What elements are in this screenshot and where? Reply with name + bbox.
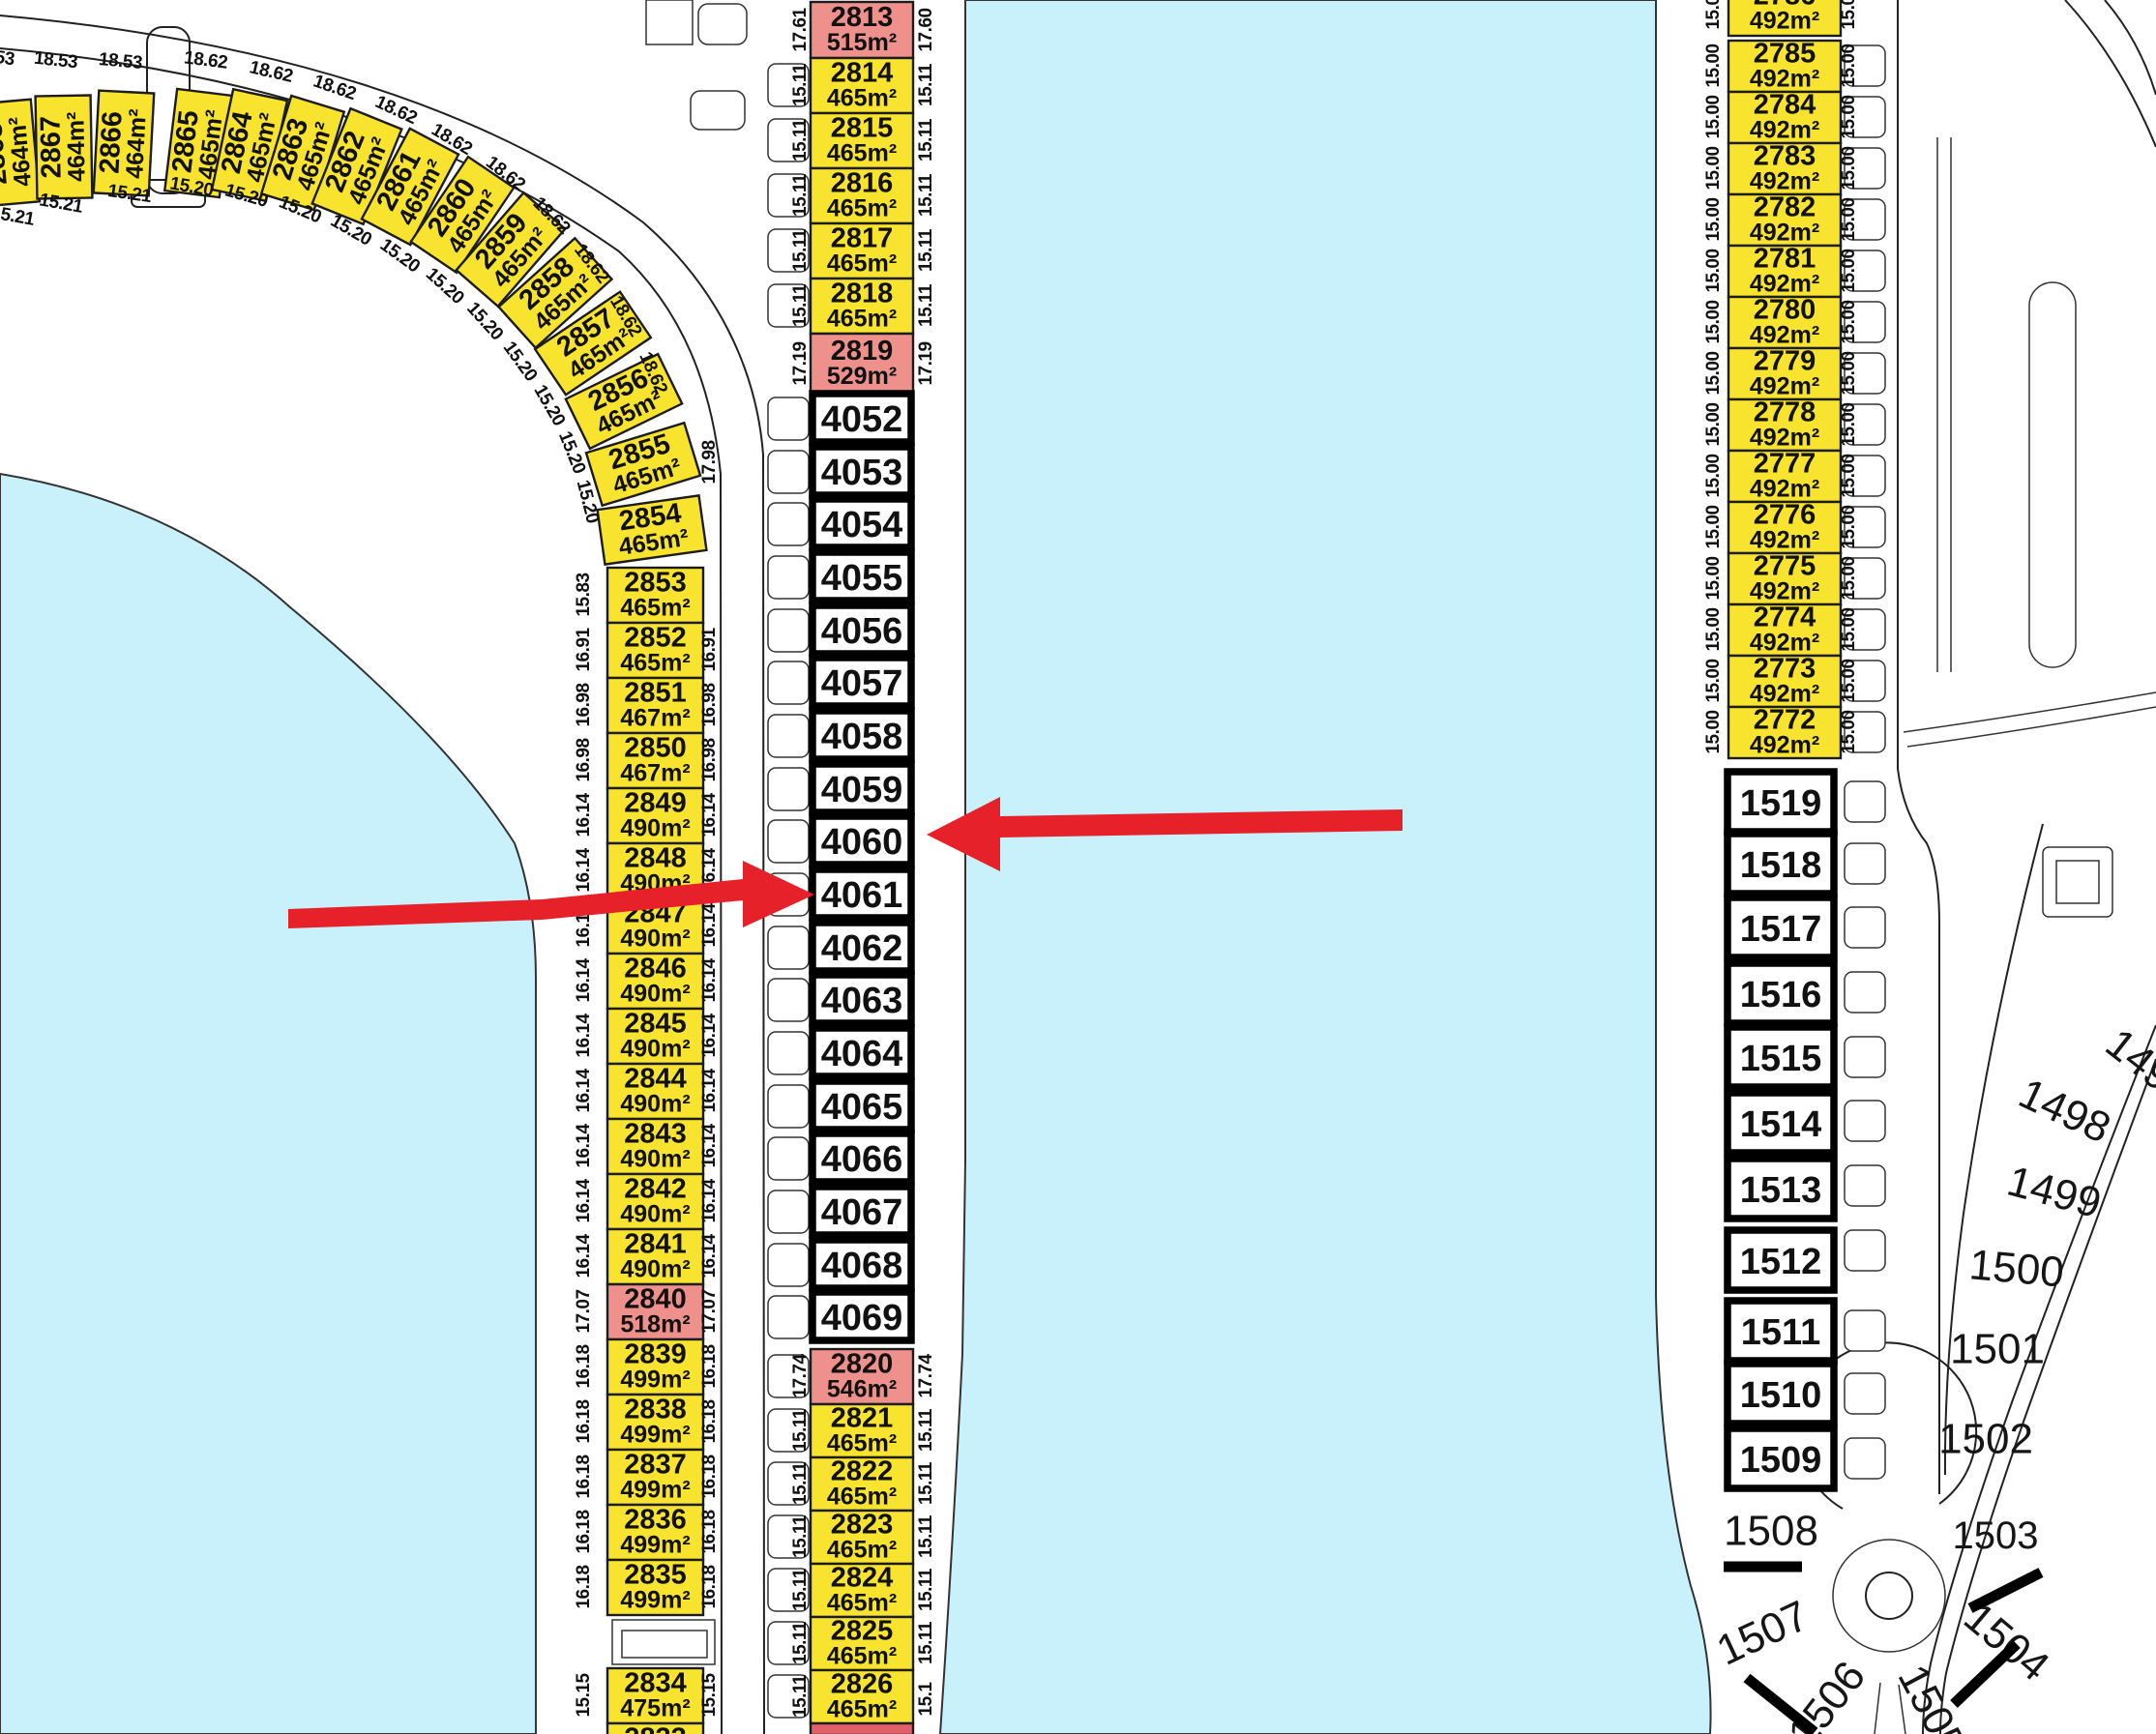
measurement-label: 16.98	[574, 683, 594, 726]
street-lot-1500: 1500	[1967, 1241, 2066, 1296]
lot-2824: 2824465m²	[811, 1563, 913, 1618]
measurement-label: 15.11	[916, 1408, 936, 1452]
boxed-lot-number: 1514	[1740, 1104, 1822, 1145]
lot-area: 490m²	[620, 1146, 690, 1173]
measurement-label: 15.00	[1703, 607, 1724, 651]
measurement-label: 15.11	[790, 1514, 811, 1558]
boxed-lot-number: 1518	[1740, 845, 1822, 886]
measurement-label: 15.00	[1703, 402, 1724, 446]
lot-area: 499m²	[620, 1532, 690, 1559]
boxed-lot-4064: 4064	[812, 1028, 911, 1076]
boxed-lot-number: 4059	[821, 770, 903, 810]
measurement-label: 16.91	[574, 628, 594, 672]
lot-2825: 2825465m²	[811, 1616, 913, 1671]
boxed-lot-number: 1516	[1740, 975, 1822, 1015]
boxed-lot-number: 1509	[1740, 1440, 1822, 1481]
measurement-label: 15.11	[916, 1621, 936, 1664]
measurement-label: 16.18	[699, 1510, 720, 1553]
measurement-label: 15.00	[1703, 659, 1724, 702]
boxed-lot-number: 1511	[1741, 1312, 1820, 1353]
lot-partial	[811, 1723, 913, 1734]
measurement-label: 15.00	[1839, 607, 1859, 651]
boxed-lot-4056: 4056	[812, 605, 911, 654]
measurement-label: 16.14	[574, 1014, 594, 1058]
boxed-lot-number: 4056	[821, 611, 903, 652]
measurement-label: 15.11	[790, 173, 811, 217]
measurement-label: 15.11	[790, 1621, 811, 1664]
lot-area: 467m²	[620, 760, 690, 787]
measurement-label: 15.00	[1703, 351, 1724, 395]
lot-area: 518m²	[620, 1311, 690, 1338]
measurement-label: 15.00	[1839, 402, 1859, 446]
lot-2823: 2823465m²	[811, 1510, 913, 1565]
measurement-label: 16.98	[699, 738, 720, 781]
measurement-label: 15.00	[1839, 300, 1859, 343]
measurement-label: 15.00	[1703, 197, 1724, 241]
driveway-structure	[768, 1085, 809, 1128]
measurement-label: 15.15	[699, 1673, 720, 1718]
lot-2781: 2781492m²	[1728, 244, 1841, 298]
lot-area: 465m²	[620, 650, 690, 677]
driveway-structure	[768, 715, 809, 757]
lot-2776: 2776492m²	[1728, 500, 1841, 554]
lot-area: 490m²	[620, 815, 690, 842]
driveway-structure	[1845, 907, 1885, 948]
boxed-lot-4068: 4068	[812, 1240, 911, 1288]
lot-2867: 2867464m²	[35, 96, 92, 199]
street-lot-1502: 1502	[1938, 1415, 2033, 1462]
boxed-lot-4055: 4055	[812, 552, 911, 601]
lot-2837: 2837499m²	[607, 1450, 703, 1506]
measurement-label: 15.11	[790, 228, 811, 272]
lot-area: 492m²	[1750, 220, 1819, 247]
lot-area: 546m²	[827, 1376, 897, 1403]
measurement-label: 16.14	[699, 1179, 720, 1223]
measurement-label: 15.00	[1703, 556, 1724, 600]
measurement-label: 18.53	[98, 49, 143, 73]
lot-2820: 2820546m²	[811, 1349, 913, 1405]
lot-area: 490m²	[620, 1036, 690, 1063]
lot-2834: 2834475m²	[607, 1668, 703, 1724]
measurement-label: 15.11	[790, 1568, 811, 1611]
driveway-structure	[1845, 1037, 1885, 1077]
lot-2839: 2839499m²	[607, 1339, 703, 1396]
measurement-label: 15.00	[1839, 505, 1859, 548]
measurement-label: 16.98	[574, 738, 594, 781]
measurement-label: 15.11	[790, 1674, 811, 1718]
measurement-label: 17.74	[916, 1354, 936, 1398]
lot-area: 492m²	[1750, 117, 1819, 144]
lot-area: 492m²	[1750, 373, 1819, 400]
lot-2843: 2843490m²	[607, 1119, 703, 1175]
driveway-structure	[768, 661, 809, 704]
lot-2826: 2826465m²	[811, 1669, 913, 1724]
measurement-label: 17.07	[699, 1289, 720, 1333]
driveway-structure	[768, 451, 809, 493]
street-lot-1501: 1501	[1950, 1325, 2045, 1372]
boxed-lot-number: 1512	[1740, 1242, 1822, 1282]
lot-area: 465m²	[827, 140, 897, 167]
boxed-lot-number: 4064	[821, 1034, 903, 1074]
lot-area: 492m²	[1750, 732, 1819, 759]
measurement-label: 15.00	[1839, 710, 1859, 753]
lot-2821: 2821465m²	[811, 1403, 913, 1458]
measurement-label: 15.11	[916, 1514, 936, 1558]
measurement-label: 16.18	[574, 1399, 594, 1443]
lot-area: 465m²	[620, 595, 690, 622]
measurement-label: 16.14	[574, 1234, 594, 1278]
boxed-lot-4057: 4057	[812, 658, 911, 706]
lot-area: 492m²	[1750, 66, 1819, 93]
lot-area: 492m²	[1750, 271, 1819, 298]
lot-area: 492m²	[1750, 527, 1819, 554]
lot-2773: 2773492m²	[1728, 654, 1841, 708]
lot-area: 465m²	[827, 1430, 897, 1457]
lot-area: 465m²	[827, 1537, 897, 1564]
measurement-label: 16.14	[574, 793, 594, 838]
driveway-structure	[768, 768, 809, 810]
driveway-structure	[768, 556, 809, 599]
boxed-lot-4065: 4065	[812, 1081, 911, 1130]
measurement-label: 15.00	[1703, 710, 1724, 753]
measurement-label: 15.00	[1839, 351, 1859, 395]
boxed-lot-4061: 4061	[812, 869, 911, 918]
driveway-structure	[1845, 1165, 1885, 1206]
lot-area: 492m²	[1750, 322, 1819, 349]
lot-2849: 2849490m²	[607, 788, 703, 844]
lot-area: 465m²	[827, 1590, 897, 1617]
measurement-label: 15.11	[790, 283, 811, 327]
lot-area: 490m²	[620, 981, 690, 1008]
lot-2841: 2841490m²	[607, 1229, 703, 1285]
boxed-lot-number: 4068	[821, 1246, 903, 1286]
lot-area: 499m²	[620, 1587, 690, 1614]
measurement-label: 15.00	[1703, 505, 1724, 548]
boxed-lot-4063: 4063	[812, 975, 911, 1023]
measurement-label: 16.18	[574, 1510, 594, 1553]
measurement-label: 16.14	[699, 1014, 720, 1058]
driveway-structure	[768, 1032, 809, 1074]
lot-2778: 2778492m²	[1728, 397, 1841, 452]
lot-2836: 2836499m²	[607, 1505, 703, 1561]
boxed-lot-4060: 4060	[812, 816, 911, 865]
boxed-lot-1519: 1519	[1728, 772, 1834, 832]
measurement-label: 16.14	[574, 1179, 594, 1223]
lot-area: 490m²	[620, 1256, 690, 1283]
measurement-label: 16.18	[699, 1344, 720, 1388]
lot-2784: 2784492m²	[1728, 90, 1841, 144]
lot-area: 492m²	[1750, 630, 1819, 657]
measurement-label: 16.14	[574, 848, 594, 893]
boxed-lot-number: 4067	[821, 1192, 903, 1233]
lot-2819: 2819529m²	[811, 334, 913, 394]
water-main-channel	[940, 0, 1711, 1734]
boxed-lot-number: 4058	[821, 717, 903, 757]
measurement-label: 15.11	[916, 228, 936, 272]
measurement-label: 15.00	[1839, 0, 1859, 30]
boxed-lot-1516: 1516	[1728, 963, 1834, 1023]
measurement-label: 16.14	[699, 958, 720, 1003]
lot-2844: 2844490m²	[607, 1064, 703, 1120]
lot-2774: 2774492m²	[1728, 602, 1841, 657]
lot-2846: 2846490m²	[607, 954, 703, 1010]
lot-area: 465m²	[827, 250, 897, 278]
lot-2851: 2851467m²	[607, 678, 703, 734]
boxed-lot-4054: 4054	[812, 499, 911, 547]
lot-area: 465m²	[827, 1696, 897, 1723]
measurement-label: 15.11	[916, 1461, 936, 1505]
measurement-label: 15.11	[916, 63, 936, 106]
boxed-lot-number: 1517	[1740, 909, 1822, 950]
measurement-label: 16.18	[699, 1565, 720, 1608]
measurement-label: 16.18	[699, 1399, 720, 1443]
lot-area: 492m²	[1750, 168, 1819, 195]
lot-2838: 2838499m²	[607, 1395, 703, 1451]
boxed-lot-4062: 4062	[812, 923, 911, 971]
measurement-label: 15.11	[916, 173, 936, 217]
boxed-lot-number: 4069	[821, 1298, 903, 1338]
measurement-label: 15.00	[1703, 300, 1724, 343]
boxed-lot-number: 4060	[821, 822, 903, 863]
measurement-label: 16.14	[699, 1234, 720, 1278]
measurement-label: 16.14	[574, 958, 594, 1003]
boxed-lot-1515: 1515	[1728, 1027, 1834, 1087]
lot-2817: 2817465m²	[811, 223, 913, 279]
lot-2780: 2780492m²	[1728, 295, 1841, 349]
boxed-lot-number: 4053	[821, 453, 903, 493]
measurement-label: 15.00	[1703, 146, 1724, 190]
measurement-label: 16.14	[699, 1124, 720, 1168]
measurement-label: 15.11	[790, 1461, 811, 1505]
measurement-label: 15.00	[1839, 44, 1859, 87]
lot-area: 492m²	[1750, 425, 1819, 452]
boxed-lot-4052: 4052	[812, 394, 911, 442]
lot-area: 499m²	[620, 1367, 690, 1394]
boxed-lot-number: 4054	[821, 505, 903, 545]
measurement-label: 15.1	[916, 1682, 936, 1717]
lot-2815: 2815465m²	[811, 113, 913, 169]
measurement-label: 15.11	[790, 63, 811, 106]
boxed-lot-4066: 4066	[812, 1133, 911, 1182]
measurement-label: 16.98	[699, 683, 720, 726]
driveway-structure	[768, 979, 809, 1021]
boxed-lot-number: 4065	[821, 1087, 903, 1128]
lot-area: 465m²	[827, 306, 897, 333]
driveway-structure	[1845, 972, 1885, 1013]
lot-area: 465m²	[827, 1643, 897, 1670]
measurement-label: 16.18	[699, 1455, 720, 1498]
lot-area: 465m²	[827, 195, 897, 222]
lot-2814: 2814465m²	[811, 58, 913, 114]
boxed-lot-number: 4062	[821, 928, 903, 969]
lot-area: 475m²	[620, 1695, 690, 1722]
lot-area: 492m²	[1750, 8, 1819, 35]
measurement-label: 15.00	[1703, 0, 1724, 30]
driveway-structure	[768, 609, 809, 652]
lot-area: 515m²	[827, 29, 897, 56]
boxed-lot-4053: 4053	[812, 447, 911, 495]
lot-area: 490m²	[620, 1091, 690, 1118]
lot-2833: 2833	[607, 1723, 703, 1734]
lot-area: 492m²	[1750, 681, 1819, 708]
lot-2772: 2772492m²	[1728, 705, 1841, 759]
measurement-label: 16.14	[574, 1069, 594, 1113]
measurement-label: 15.11	[790, 118, 811, 162]
lot-2853: 2853465m²	[607, 568, 703, 624]
lot-area: 529m²	[827, 363, 897, 390]
boxed-lot-number: 1513	[1740, 1170, 1822, 1211]
measurement-label: 16.18	[574, 1455, 594, 1498]
boxed-lot-1518: 1518	[1728, 834, 1834, 894]
lot-area: 465m²	[827, 1484, 897, 1511]
measurement-label: 53	[0, 47, 15, 71]
measurement-label: 15.00	[1703, 249, 1724, 292]
measurement-label: 16.14	[574, 1124, 594, 1168]
boxed-lot-number: 1515	[1740, 1039, 1822, 1079]
measurement-label: 15.00	[1703, 95, 1724, 138]
lot-2786: 2786492m²	[1728, 0, 1841, 36]
measurement-label: 16.18	[574, 1344, 594, 1388]
measurement-label: 17.19	[916, 341, 936, 385]
boxed-lot-number: 4057	[821, 663, 903, 704]
measurement-label: 15.00	[1703, 454, 1724, 497]
measurement-label: 17.61	[790, 8, 811, 52]
boxed-lot-4069: 4069	[812, 1292, 911, 1340]
boxed-lot-number: 4061	[821, 875, 903, 916]
measurement-label: 16.18	[574, 1565, 594, 1608]
boxed-lot-1511: 1511	[1728, 1301, 1834, 1361]
measurement-label: 15.00	[1839, 454, 1859, 497]
boxed-lot-1510: 1510	[1728, 1364, 1834, 1424]
measurement-label: 17.74	[790, 1354, 811, 1398]
measurement-label: 16.14	[699, 793, 720, 838]
lot-2783: 2783492m²	[1728, 141, 1841, 195]
lot-2813: 2813515m²	[811, 2, 913, 58]
measurement-label: 15.11	[916, 1568, 936, 1611]
lot-2816: 2816465m²	[811, 168, 913, 224]
boxed-lot-1514: 1514	[1728, 1093, 1834, 1153]
boxed-lot-4059: 4059	[812, 764, 911, 812]
lot-2818: 2818465m²	[811, 279, 913, 335]
measurement-label: 17.19	[790, 341, 811, 385]
boxed-lot-1512: 1512	[1728, 1230, 1834, 1290]
subdivision-map: 2868464m²2867464m²2866464m²2865465m²2864…	[0, 0, 2156, 1734]
measurement-label: 15.00	[1839, 197, 1859, 241]
boxed-lot-number: 4055	[821, 558, 903, 599]
measurement-label: 16.91	[699, 628, 720, 672]
lot-area: 490m²	[620, 1201, 690, 1228]
boxed-lot-number: 1510	[1740, 1375, 1822, 1416]
driveway-structure	[768, 1137, 809, 1180]
driveway-structure	[768, 1190, 809, 1233]
driveway-structure	[1845, 781, 1885, 822]
measurement-label: 15.00	[1839, 146, 1859, 190]
lot-2866: 2866464m²	[93, 91, 154, 196]
measurement-label: 15.11	[916, 283, 936, 327]
lot-2785: 2785492m²	[1728, 39, 1841, 93]
driveway-structure	[1845, 1373, 1885, 1414]
lot-area: 465m²	[827, 85, 897, 112]
driveway-structure	[1845, 843, 1885, 884]
measurement-label: 15.83	[574, 573, 594, 616]
measurement-label: 15.11	[916, 118, 936, 162]
street-lot-1503: 1503	[1953, 1514, 2039, 1557]
lot-area: 490m²	[620, 926, 690, 953]
lot-2779: 2779492m²	[1728, 346, 1841, 400]
measurement-label: 15.11	[790, 1408, 811, 1452]
lot-2850: 2850467m²	[607, 733, 703, 789]
lot-2777: 2777492m²	[1728, 449, 1841, 503]
measurement-label: 17.60	[916, 8, 936, 51]
lot-2782: 2782492m²	[1728, 192, 1841, 247]
measurement-label: 17.98	[699, 440, 720, 484]
lot-2835: 2835499m²	[607, 1560, 703, 1616]
driveway-structure	[768, 926, 809, 969]
boxed-lot-4058: 4058	[812, 711, 911, 759]
lot-2840: 2840518m²	[607, 1284, 703, 1340]
lot-2852: 2852465m²	[607, 623, 703, 679]
lot-area: 499m²	[620, 1477, 690, 1504]
lot-2845: 2845490m²	[607, 1009, 703, 1065]
lot-area: 492m²	[1750, 578, 1819, 605]
boxed-lot-4067: 4067	[812, 1187, 911, 1235]
lot-2775: 2775492m²	[1728, 551, 1841, 605]
boxed-lot-number: 4052	[821, 399, 903, 440]
driveway-structure	[1845, 1101, 1885, 1141]
boxed-lot-1517: 1517	[1728, 897, 1834, 957]
lot-2822: 2822465m²	[811, 1456, 913, 1512]
lot-area: 464m²	[121, 108, 152, 180]
boxed-lot-number: 4063	[821, 981, 903, 1021]
lot-area: 499m²	[620, 1422, 690, 1449]
map-canvas: 2868464m²2867464m²2866464m²2865465m²2864…	[0, 0, 2156, 1734]
driveway-structure	[768, 1296, 809, 1338]
lot-area: 467m²	[620, 705, 690, 732]
measurement-label: 15.00	[1703, 44, 1724, 87]
measurement-label: 16.14	[699, 1069, 720, 1113]
boxed-lot-1509: 1509	[1728, 1428, 1834, 1488]
driveway-structure	[768, 397, 809, 440]
measurement-label: 17.07	[574, 1289, 594, 1333]
boxed-lot-number: 4066	[821, 1139, 903, 1180]
driveway-structure	[1845, 1310, 1885, 1351]
measurement-label: 16.14	[699, 903, 720, 948]
boxed-lot-1513: 1513	[1728, 1159, 1834, 1219]
measurement-label: 15.00	[1839, 556, 1859, 600]
driveway-structure	[1845, 1438, 1885, 1479]
boxed-lot-number: 1519	[1740, 783, 1822, 824]
measurement-label: 15.00	[1839, 95, 1859, 138]
lot-number: 2833	[624, 1723, 687, 1734]
lot-2842: 2842490m²	[607, 1174, 703, 1230]
driveway-structure	[768, 1244, 809, 1286]
measurement-label: 15.15	[574, 1673, 594, 1718]
street-lot-1508: 1508	[1724, 1507, 1818, 1554]
driveway-structure	[768, 820, 809, 863]
driveway-structure	[1845, 1230, 1885, 1271]
measurement-label: 15.00	[1839, 249, 1859, 292]
driveway-structure	[768, 503, 809, 545]
lot-area: 492m²	[1750, 476, 1819, 503]
lot-area: 464m²	[62, 111, 90, 182]
measurement-label: 15.00	[1839, 659, 1859, 702]
